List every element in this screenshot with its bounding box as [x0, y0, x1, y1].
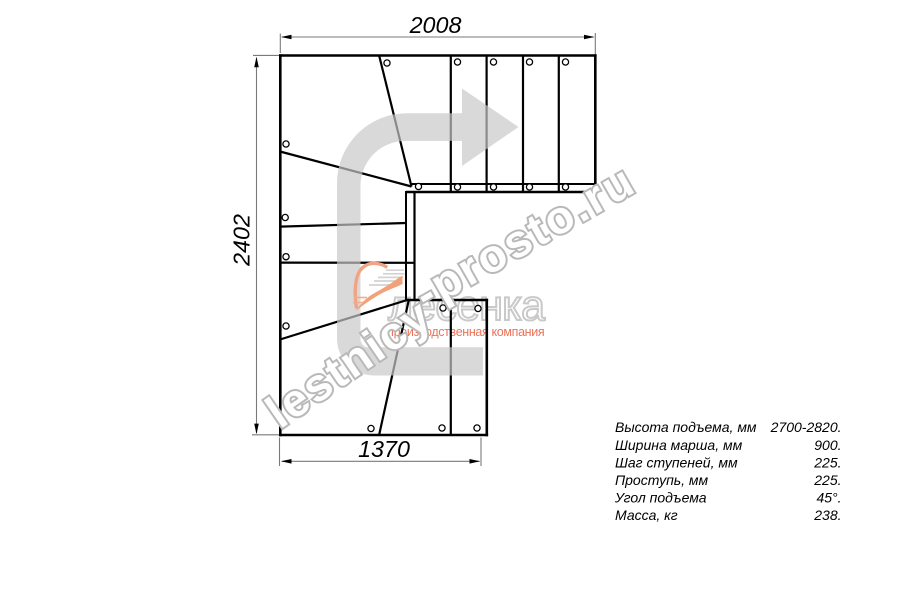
svg-text:Шаг ступеней, мм: Шаг ступеней, мм — [615, 455, 738, 471]
svg-text:Высота подъема, мм: Высота подъема, мм — [615, 419, 757, 435]
svg-text:2402: 2402 — [229, 214, 255, 267]
svg-text:Масса, кг: Масса, кг — [615, 507, 678, 523]
svg-text:45°.: 45°. — [816, 490, 841, 506]
svg-text:900.: 900. — [814, 437, 841, 453]
svg-text:Угол подъема: Угол подъема — [614, 490, 707, 506]
svg-text:Ширина марша, мм: Ширина марша, мм — [615, 437, 743, 453]
svg-text:238.: 238. — [813, 507, 841, 523]
svg-text:225.: 225. — [813, 472, 841, 488]
svg-text:1370: 1370 — [358, 436, 410, 462]
svg-text:Проступь, мм: Проступь, мм — [615, 472, 709, 488]
svg-text:2008: 2008 — [409, 12, 462, 38]
svg-text:2700-2820.: 2700-2820. — [770, 419, 842, 435]
svg-text:225.: 225. — [813, 455, 841, 471]
